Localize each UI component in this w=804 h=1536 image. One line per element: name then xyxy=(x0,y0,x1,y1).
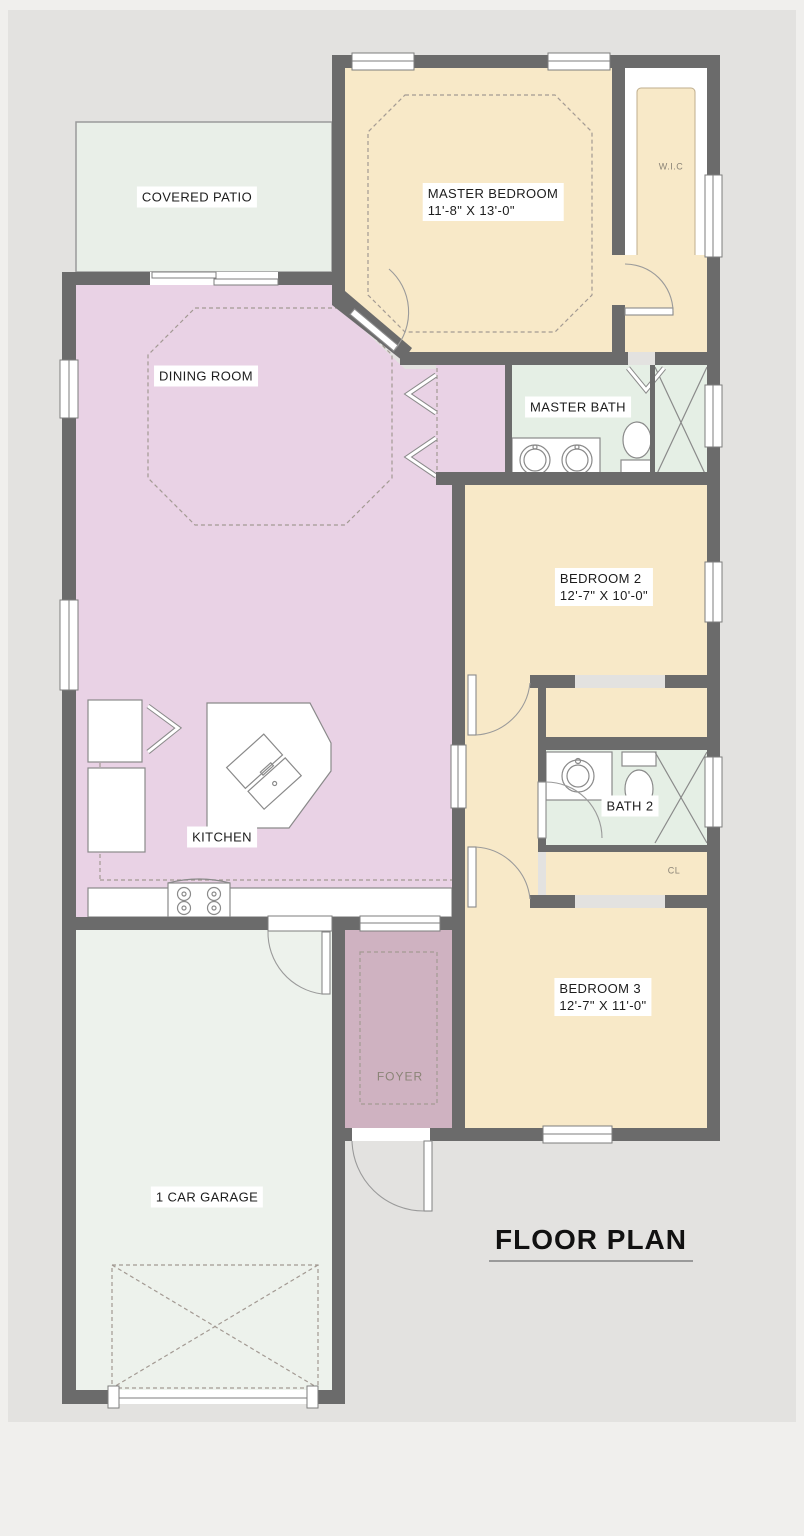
room-label-cl: CL xyxy=(668,863,681,880)
room-label-garage: 1 CAR GARAGE xyxy=(151,1187,263,1208)
room-dims-master-bedroom: 11'-8" X 13'-0" xyxy=(428,202,559,219)
drawing-title: FLOOR PLAN xyxy=(489,1224,693,1262)
room-label-master-bedroom: MASTER BEDROOM 11'-8" X 13'-0" xyxy=(423,183,564,221)
room-label-dining-room: DINING ROOM xyxy=(154,366,258,387)
stove xyxy=(168,883,230,917)
room-label-bedroom-3: BEDROOM 3 12'-7" X 11'-0" xyxy=(554,978,651,1016)
floor-plan-page: COVERED PATIO MASTER BEDROOM 11'-8" X 13… xyxy=(0,0,804,1536)
refrigerator xyxy=(88,768,145,852)
room-label-covered-patio: COVERED PATIO xyxy=(137,187,257,208)
master-toilet xyxy=(623,422,651,458)
room-dims-bedroom-3: 12'-7" X 11'-0" xyxy=(559,997,646,1014)
room-label-wic: W.I.C xyxy=(659,159,684,176)
bath2-toilet-tank xyxy=(622,752,656,766)
room-label-bath-2: BATH 2 xyxy=(602,796,659,817)
room-label-master-bath: MASTER BATH xyxy=(525,397,631,418)
room-label-kitchen: KITCHEN xyxy=(187,827,257,848)
pantry xyxy=(88,700,142,762)
room-label-bedroom-2: BEDROOM 2 12'-7" X 10'-0" xyxy=(555,568,653,606)
floor-plan-drawing xyxy=(0,0,804,1536)
room-dims-bedroom-2: 12'-7" X 10'-0" xyxy=(560,587,648,604)
room-label-foyer: FOYER xyxy=(377,1069,423,1086)
